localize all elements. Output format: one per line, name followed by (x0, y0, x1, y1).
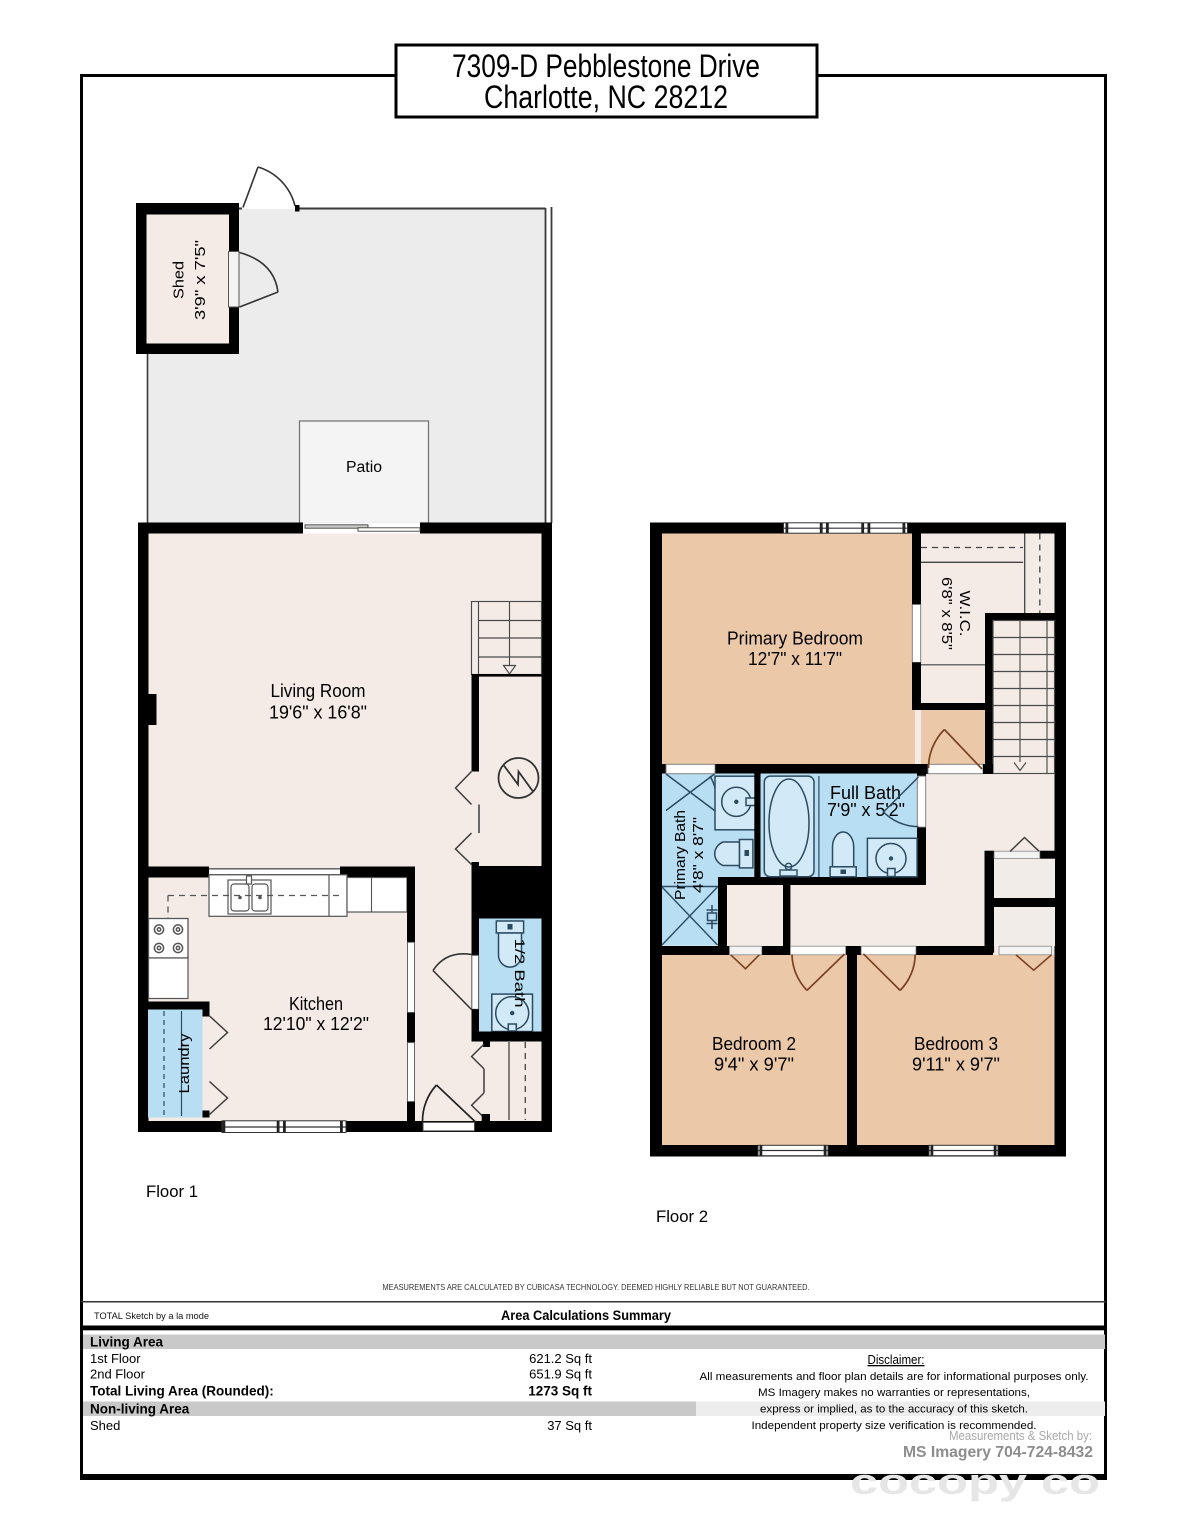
svg-text:651.9 Sq ft: 651.9 Sq ft (529, 1367, 592, 1382)
svg-text:Primary Bedroom: Primary Bedroom (727, 629, 863, 649)
svg-text:W.I.C.: W.I.C. (956, 591, 972, 637)
svg-text:MS Imagery 704-724-8432: MS Imagery 704-724-8432 (903, 1444, 1093, 1461)
svg-text:Disclaimer:: Disclaimer: (868, 1352, 925, 1367)
svg-text:Shed: Shed (90, 1418, 120, 1433)
svg-text:Living Area: Living Area (90, 1335, 164, 1350)
svg-text:1273 Sq ft: 1273 Sq ft (528, 1384, 592, 1399)
svg-text:Total Living Area (Rounded):: Total Living Area (Rounded): (90, 1384, 274, 1399)
svg-text:37 Sq ft: 37 Sq ft (547, 1418, 592, 1433)
svg-text:Patio: Patio (346, 459, 382, 476)
svg-text:2nd Floor: 2nd Floor (90, 1367, 146, 1382)
svg-text:12'7" x 11'7": 12'7" x 11'7" (748, 649, 842, 669)
svg-text:TOTAL Sketch by a la mode: TOTAL Sketch by a la mode (94, 1311, 209, 1322)
svg-text:Primary Bath: Primary Bath (673, 810, 689, 900)
svg-text:Kitchen: Kitchen (289, 994, 343, 1014)
svg-text:MEASUREMENTS ARE CALCULATED BY: MEASUREMENTS ARE CALCULATED BY CUBICASA … (383, 1282, 810, 1292)
svg-text:Area Calculations Summary: Area Calculations Summary (501, 1308, 671, 1323)
svg-text:Floor 2: Floor 2 (656, 1208, 708, 1226)
svg-text:1/2 Bath: 1/2 Bath (512, 939, 528, 1008)
svg-text:3'9" x 7'5": 3'9" x 7'5" (192, 240, 209, 320)
svg-text:Bedroom 2: Bedroom 2 (712, 1034, 796, 1054)
svg-text:Charlotte, NC 28212: Charlotte, NC 28212 (484, 79, 728, 115)
svg-text:9'4" x 9'7": 9'4" x 9'7" (714, 1055, 794, 1075)
svg-text:9'11" x 9'7": 9'11" x 9'7" (912, 1055, 1000, 1075)
svg-text:Measurements & Sketch by:: Measurements & Sketch by: (949, 1429, 1092, 1443)
svg-text:4'8" x 8'7": 4'8" x 8'7" (691, 817, 707, 893)
svg-text:cocopy co: cocopy co (850, 1461, 1100, 1502)
svg-text:MS Imagery makes no warranties: MS Imagery makes no warranties or repres… (758, 1387, 1030, 1399)
svg-text:621.2 Sq ft: 621.2 Sq ft (529, 1351, 592, 1366)
svg-text:Laundry: Laundry (177, 1033, 193, 1094)
svg-text:Shed: Shed (171, 261, 188, 299)
svg-text:express or implied, as to the: express or implied, as to the accuracy o… (760, 1404, 1028, 1416)
svg-text:Non-living Area: Non-living Area (90, 1402, 190, 1417)
svg-text:1st Floor: 1st Floor (90, 1351, 141, 1366)
svg-text:19'6" x 16'8": 19'6" x 16'8" (269, 703, 367, 723)
svg-text:12'10" x 12'2": 12'10" x 12'2" (263, 1014, 369, 1034)
svg-text:Bedroom 3: Bedroom 3 (914, 1034, 998, 1054)
svg-text:Living Room: Living Room (271, 681, 366, 701)
svg-text:6'8" x 8'5": 6'8" x 8'5" (938, 577, 954, 650)
svg-text:All measurements and floor pla: All measurements and floor plan details … (700, 1371, 1089, 1383)
svg-text:Floor 1: Floor 1 (146, 1183, 198, 1201)
